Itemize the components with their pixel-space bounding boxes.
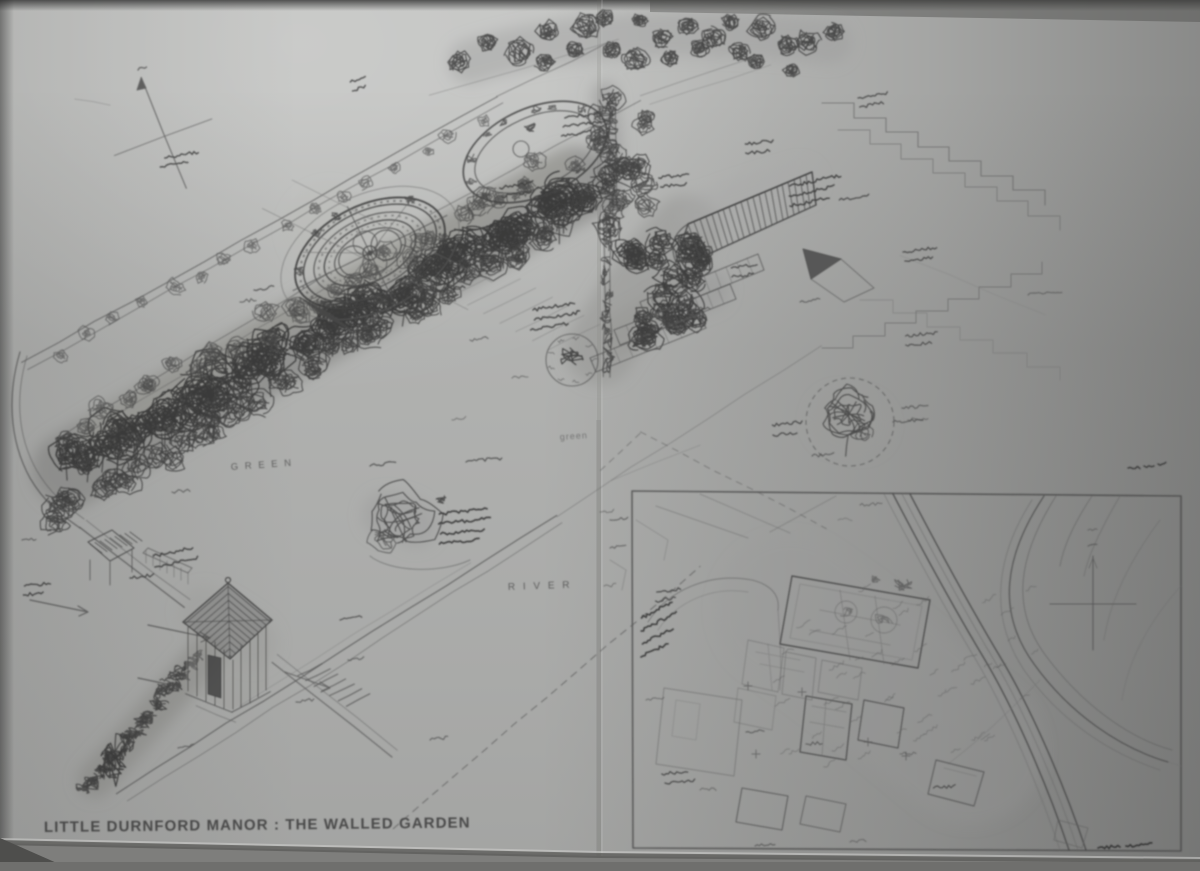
svg-text:R I V E R: R I V E R [508, 580, 573, 593]
svg-text:green: green [559, 430, 588, 442]
